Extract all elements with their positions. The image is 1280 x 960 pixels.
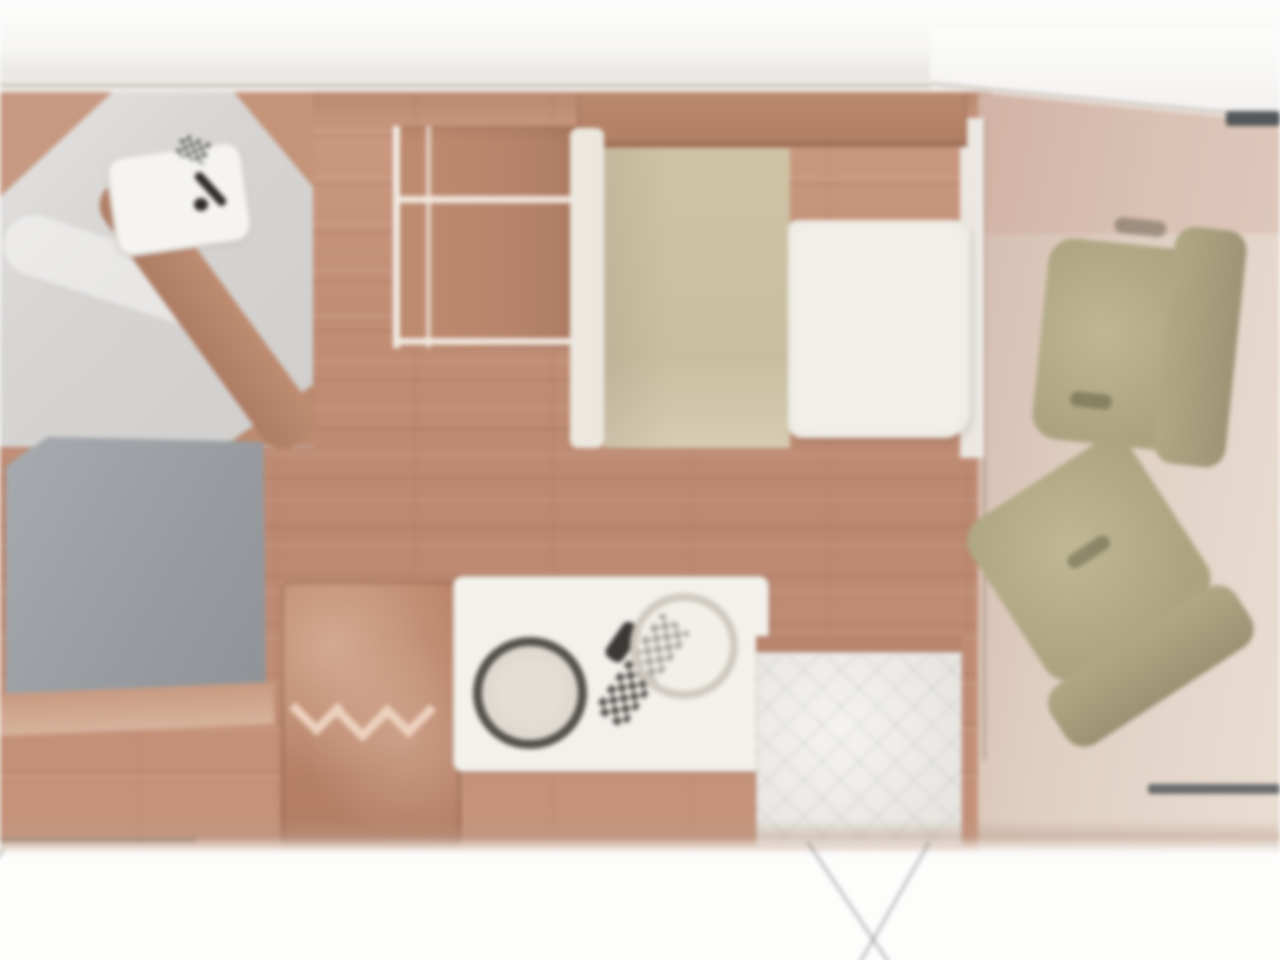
bed-base-beige (604, 148, 790, 448)
windshield-dash-icon (1226, 111, 1280, 126)
kitchen-counter (453, 576, 769, 772)
hob-burner-icon (381, 683, 436, 738)
floorplan-image (0, 0, 1280, 960)
counter-ring-icon (630, 593, 738, 699)
wardrobe-shelves (393, 126, 584, 348)
hob-burner-icon (335, 687, 390, 742)
bottom-background (0, 854, 1280, 960)
entrance-floor (756, 652, 962, 846)
shelf-divider (426, 126, 431, 348)
bottom-wall-line (0, 838, 196, 842)
floorplan-scene (0, 0, 1280, 960)
faucet-icon (194, 198, 208, 211)
bed-headboard (577, 85, 967, 147)
cab-step-dash (1148, 784, 1280, 794)
hob-burner-icon (289, 681, 344, 736)
shower-tray (104, 139, 255, 259)
kitchen-hob-unit (281, 581, 461, 847)
top-wall-line (0, 84, 948, 87)
rear-gray-bed (6, 434, 266, 700)
bed-duvet (788, 220, 970, 438)
sink-icon (473, 637, 587, 749)
bed-side-rail (570, 128, 604, 448)
